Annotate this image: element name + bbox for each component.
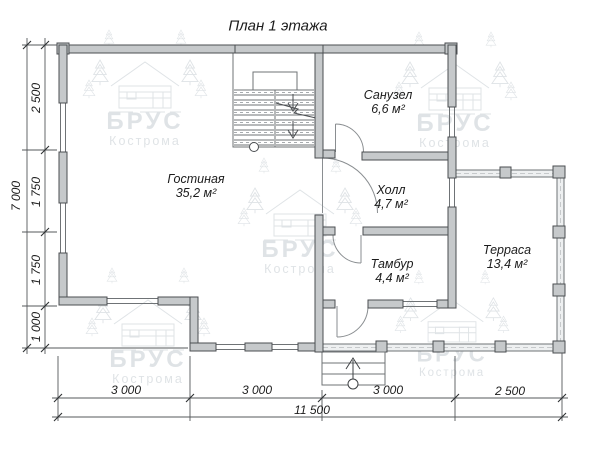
wall-exterior-bottom — [245, 343, 272, 351]
wall-bathroom-south — [362, 152, 449, 160]
window-living-left-2 — [61, 203, 66, 253]
window-hall-right — [450, 178, 455, 207]
svg-text:Кострома: Кострома — [109, 134, 181, 148]
room-name: Санузел — [364, 88, 413, 102]
wall-hall-vestibule — [363, 227, 448, 235]
svg-text:БРУС: БРУС — [109, 346, 186, 373]
dim-left-total: 7 000 — [9, 181, 23, 211]
wall-exterior-bottom — [190, 343, 216, 351]
wall-notch-top — [59, 297, 107, 305]
dim-bottom-segment: 3 000 — [111, 383, 141, 397]
watermark-logo: БРУС Кострома — [238, 158, 362, 276]
door-bathroom — [336, 124, 364, 152]
room-label-vestibule: Тамбур 4,4 м² — [371, 257, 414, 285]
svg-text:Кострома: Кострома — [264, 262, 336, 276]
room-label-bathroom: Санузел 6,6 м² — [364, 88, 413, 116]
wall-stub — [323, 150, 335, 158]
floor-plan-page: БРУС Кострома БРУС Кострома БРУС Костром… — [0, 0, 600, 450]
wall-vestibule-south — [368, 300, 403, 308]
wall-stub — [323, 300, 335, 308]
room-label-hall: Холл 4,7 м² — [374, 183, 408, 211]
window-living-left-1 — [61, 103, 66, 152]
page-title: План 1 этажа — [228, 18, 327, 35]
dim-bottom-segment: 3 000 — [373, 383, 403, 397]
svg-text:БРУС: БРУС — [106, 108, 183, 135]
svg-text:БРУС: БРУС — [261, 236, 338, 263]
dim-left-segment: 1 000 — [29, 312, 43, 342]
room-area: 35,2 м² — [167, 186, 224, 200]
dim-bottom-total: 11 500 — [294, 403, 330, 417]
dim-bottom-segment: 3 000 — [242, 383, 272, 397]
dim-bottom-segment: 2 500 — [495, 384, 525, 398]
room-area: 4,4 м² — [371, 271, 414, 285]
wall-exterior-right — [448, 207, 456, 308]
room-label-terrace: Терраса 13,4 м² — [483, 243, 531, 271]
room-name: Терраса — [483, 243, 531, 257]
room-area: 13,4 м² — [483, 257, 531, 271]
room-name: Гостиная — [167, 172, 224, 186]
dim-left-segment: 1 750 — [29, 255, 43, 285]
window-living-bottom-2 — [272, 345, 298, 350]
wall-exterior-left — [59, 152, 67, 203]
window-living-notch — [107, 299, 158, 304]
wall-exterior-top — [59, 45, 456, 53]
door-entrance — [337, 306, 368, 337]
room-name: Холл — [374, 183, 408, 197]
svg-text:Кострома: Кострома — [419, 367, 485, 379]
room-area: 6,6 м² — [364, 102, 413, 116]
wall-exterior-left — [59, 45, 67, 103]
staircase — [233, 53, 316, 152]
floor-plan-drawing: БРУС Кострома БРУС Кострома БРУС Костром… — [0, 0, 600, 450]
dim-left-segment: 1 750 — [29, 177, 43, 207]
wall-stub — [323, 227, 335, 235]
room-name: Тамбур — [371, 257, 414, 271]
wall-interior-main — [315, 53, 323, 158]
window-living-bottom-1 — [216, 345, 245, 350]
wall-interior-main — [315, 215, 323, 352]
dim-left-segment: 2 500 — [29, 83, 43, 113]
room-area: 4,7 м² — [374, 197, 408, 211]
wall-exterior-right — [448, 137, 456, 178]
stair-direction-arrows — [288, 94, 298, 138]
wall-exterior-right — [448, 45, 456, 107]
room-label-living: Гостиная 35,2 м² — [167, 172, 224, 200]
